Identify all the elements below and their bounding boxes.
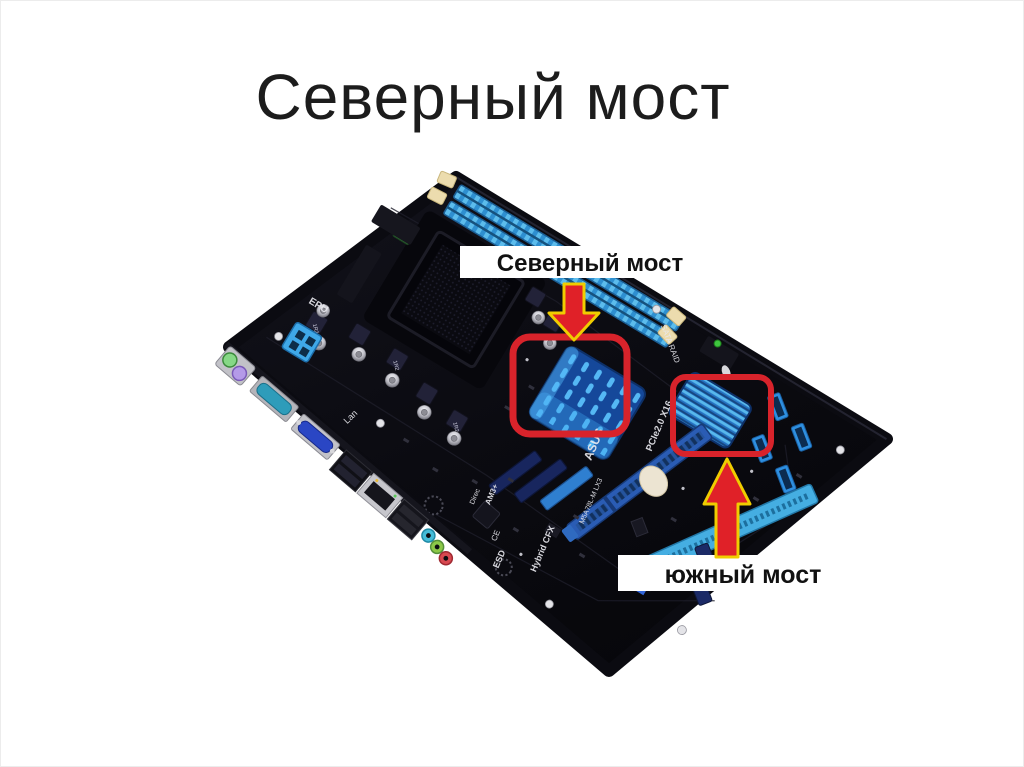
slide-title: Северный мост xyxy=(255,61,730,133)
south-callout: южный мост xyxy=(618,555,869,591)
north-callout: Северный мост xyxy=(460,246,721,278)
north-label: Северный мост xyxy=(497,250,684,277)
south-label: южный мост xyxy=(665,561,822,589)
motherboard-photo: 1R2 1R2 1R2 xyxy=(181,116,889,730)
slide-canvas: 1R2 1R2 1R2 xyxy=(1,1,1024,767)
presentation-slide: 1R2 1R2 1R2 xyxy=(0,0,1024,767)
